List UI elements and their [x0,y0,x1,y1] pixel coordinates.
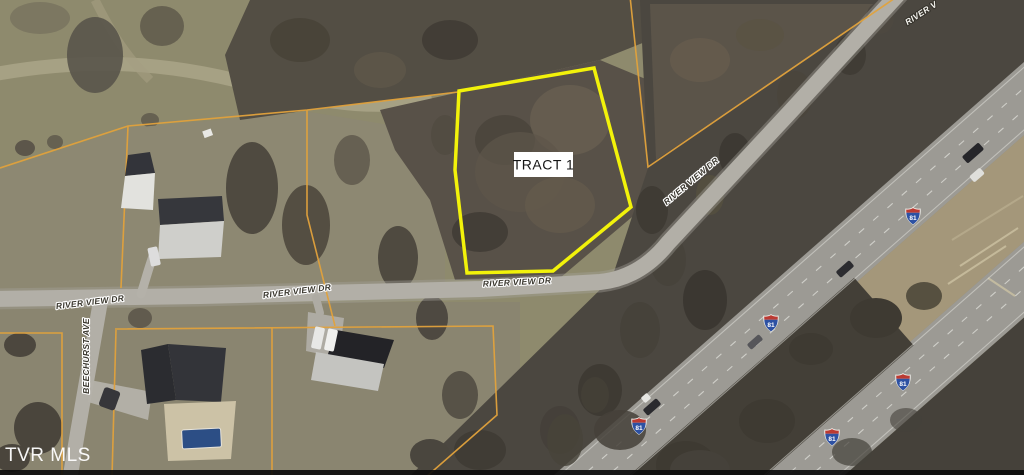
house-a-garage-body [121,173,155,210]
swimming-pool [182,428,222,449]
tract-1-label-text: TRACT 1 [513,157,575,173]
house-a-roof [158,196,224,225]
tract-1-label: TRACT 1 [513,152,575,177]
house-b-roof-main [168,344,226,402]
house-a-gable [158,221,224,259]
bottom-border [0,470,1024,475]
watermark: TVR MLS [5,445,91,466]
mls-map-screenshot: 81 [0,0,1024,475]
house-a-garage-roof [125,152,155,176]
driveway-house-c [316,298,320,313]
mls-aerial-map: 81 [0,0,1024,475]
road-label-beechurst-ave: BEECHURST AVE [81,318,91,394]
